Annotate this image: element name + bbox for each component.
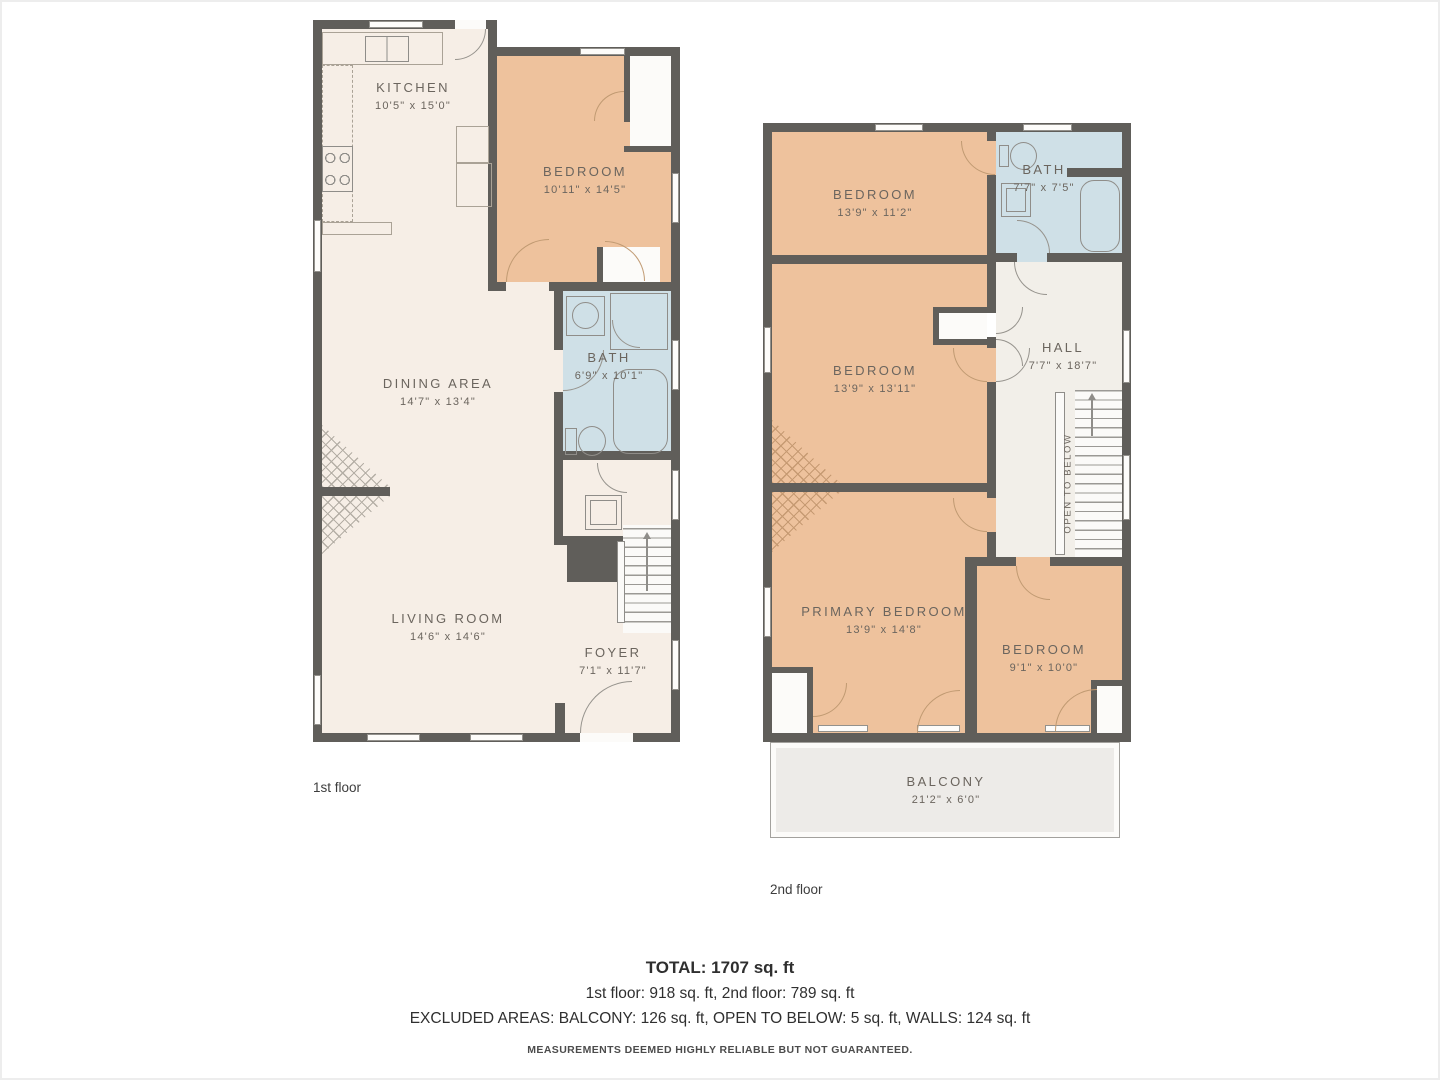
wall [1122,123,1131,742]
room-label-kitchen: KITCHEN 10'5" x 15'0" [375,80,451,112]
room-dims: 6'9" x 10'1" [575,370,644,382]
window [369,21,423,28]
room-label-bedroom: BEDROOM 10'11" x 14'5" [543,164,627,196]
wall [772,483,987,492]
room-dims: 14'6" x 14'6" [391,631,504,643]
room-name: BALCONY [907,774,986,789]
toilet-tank-icon [565,428,577,455]
stair-direction-arrow [643,532,651,539]
wall [996,253,1017,262]
room-dims: 21'2" x 6'0" [907,794,986,806]
room-label-bedroom-small: BEDROOM 9'1" x 10'0" [1002,642,1086,674]
stair-railing [617,541,625,623]
stair-void-wall-stub [313,487,390,496]
wall [554,291,563,350]
stair-direction-arrow-line [1091,400,1093,436]
cabinet-icon [456,163,492,207]
kitchen-counter-icon [322,65,353,222]
window [1123,330,1130,383]
floor-areas-text: 1st floor: 918 sq. ft, 2nd floor: 789 sq… [0,985,1440,1003]
room-dims: 13'9" x 13'11" [833,383,917,395]
wall [624,56,630,122]
wall [597,247,603,282]
first-floor-plan: KITCHEN 10'5" x 15'0" BEDROOM 10'11" x 1… [313,20,680,742]
window [818,725,868,732]
kitchen-sink-icon [365,36,409,62]
room-dims: 13'9" x 14'8" [801,624,967,636]
stair-direction-arrow [1088,393,1096,400]
room-label-bedroom-top: BEDROOM 13'9" x 11'2" [833,187,917,219]
window [672,640,679,690]
door-opening [554,350,563,392]
window [764,587,771,637]
window [1123,455,1130,520]
first-floor-caption: 1st floor [313,780,361,795]
room-label-bedroom-mid: BEDROOM 13'9" x 13'11" [833,363,917,395]
wall [549,282,671,291]
room-name: BEDROOM [1002,642,1086,657]
kitchen-counter-icon [322,222,392,235]
open-to-below-label: OPEN TO BELOW [1063,429,1074,539]
wall [624,146,671,152]
stair-block-wall [567,545,623,582]
staircase [1075,390,1122,557]
door-opening [987,348,996,382]
second-floor-caption: 2nd floor [770,882,823,897]
room-label-dining: DINING AREA 14'7" x 13'4" [383,376,493,408]
room-name: BATH [575,350,644,365]
room-name: BEDROOM [833,363,917,378]
door-opening [506,282,549,291]
wall [1047,253,1122,262]
door-opening [1017,253,1047,262]
window [875,124,923,131]
window [367,734,420,741]
excluded-areas-text: EXCLUDED AREAS: BALCONY: 126 sq. ft, OPE… [0,1010,1440,1028]
room-label-balcony: BALCONY 21'2" x 6'0" [907,774,986,806]
wall [763,733,1131,742]
stair-direction-arrow-line [646,539,648,591]
room-name: KITCHEN [375,80,451,95]
window [580,48,625,55]
room-dims: 14'7" x 13'4" [383,396,493,408]
room-name: DINING AREA [383,376,493,391]
disclaimer-text: MEASUREMENTS DEEMED HIGHLY RELIABLE BUT … [0,1044,1440,1056]
room-name: FOYER [579,645,647,660]
wall [763,123,772,742]
room-dims: 10'5" x 15'0" [375,100,451,112]
window [672,340,679,390]
floorplan-page: KITCHEN 10'5" x 15'0" BEDROOM 10'11" x 1… [0,0,1440,1080]
room-name: HALL [1029,340,1098,355]
room-dims: 9'1" x 10'0" [1002,662,1086,674]
total-area-text: TOTAL: 1707 sq. ft [0,958,1440,978]
door-opening [1016,557,1050,566]
wall [933,307,990,313]
wall [488,282,506,291]
room-dims: 10'11" x 14'5" [543,184,627,196]
closet-right [1097,686,1122,733]
door-opening [580,733,633,742]
wall [933,307,939,345]
room-name: BEDROOM [543,164,627,179]
room-label-primary-bedroom: PRIMARY BEDROOM 13'9" x 14'8" [801,604,967,636]
closet-left [772,673,807,733]
door-opening [455,20,486,29]
toilet-tank-icon [999,145,1009,167]
bathtub-icon [1080,180,1120,252]
wall [772,255,987,264]
wall [554,460,563,545]
wall [987,382,996,498]
window [314,675,321,725]
window [470,734,523,741]
refrigerator-icon [456,126,489,163]
wall [313,20,322,742]
area-summary: TOTAL: 1707 sq. ft 1st floor: 918 sq. ft… [0,958,1440,1056]
window [764,327,771,373]
toilet-bowl-icon [578,426,606,456]
room-label-living: LIVING ROOM 14'6" x 14'6" [391,611,504,643]
second-floor-plan: OPEN TO BELOW BEDROOM 13'9" x 11'2" BATH… [763,123,1131,742]
window [1023,124,1072,131]
wall [987,132,996,141]
window [672,470,679,520]
sink-icon [572,302,599,329]
bedroom-closet-top [630,56,671,146]
balcony: BALCONY 21'2" x 6'0" [770,742,1120,838]
wall [933,339,990,345]
wall [1050,557,1131,566]
wall [1067,168,1122,177]
room-dims: 7'7" x 7'5" [1013,182,1074,194]
wall [554,392,563,460]
window [672,173,679,223]
wall [555,703,565,733]
room-label-hall: HALL 7'7" x 18'7" [1029,340,1098,372]
wall [965,557,977,733]
window [314,220,321,272]
wall [987,175,996,313]
room-dims: 13'9" x 11'2" [833,207,917,219]
room-label-bath: BATH 6'9" x 10'1" [575,350,644,382]
room-name: PRIMARY BEDROOM [801,604,967,619]
room-label-foyer: FOYER 7'1" x 11'7" [579,645,647,677]
room-name: BATH [1013,162,1074,177]
room-dims: 7'1" x 11'7" [579,665,647,677]
room-name: LIVING ROOM [391,611,504,626]
stove-icon [322,146,353,192]
linen-closet [939,313,987,339]
door-opening [987,498,996,532]
wall [763,123,1131,132]
washer-inner-icon [590,500,617,525]
room-name: BEDROOM [833,187,917,202]
room-label-bath: BATH 7'7" x 7'5" [1013,162,1074,194]
room-dims: 7'7" x 18'7" [1029,360,1098,372]
wall [671,47,680,742]
